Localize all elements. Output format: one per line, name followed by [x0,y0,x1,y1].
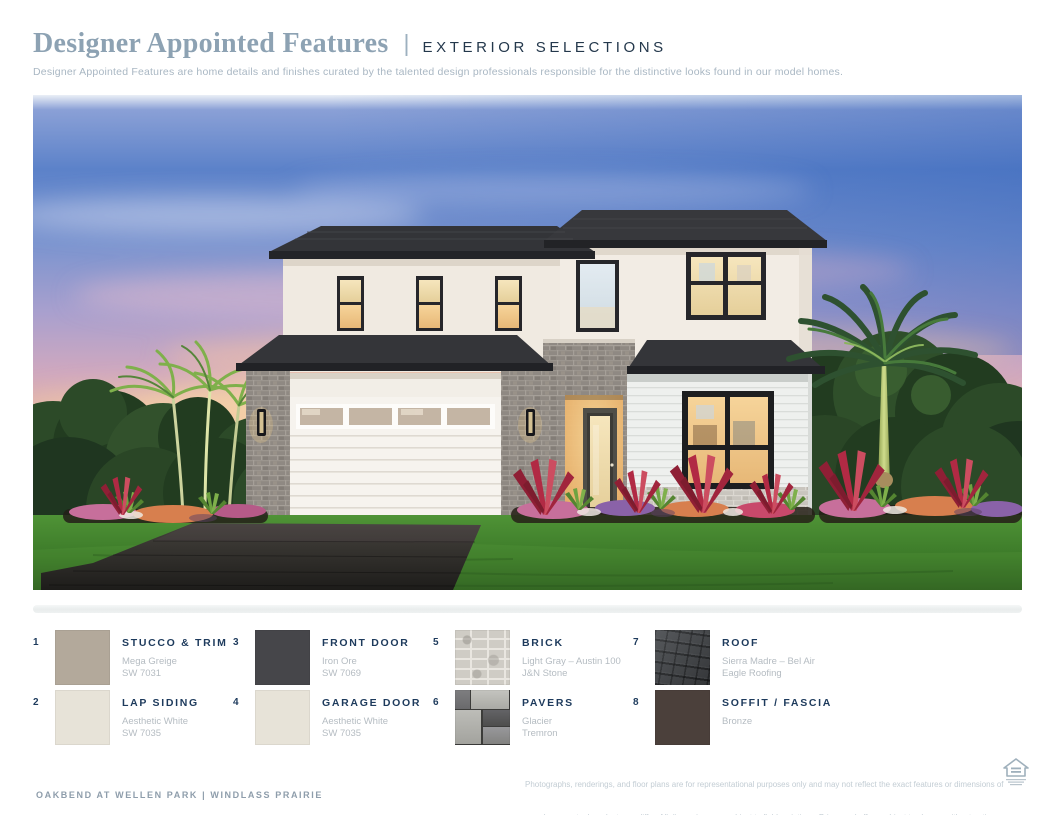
selection-number: 4 [233,690,255,708]
selection-color-name: Light Gray – Austin 100 [522,656,621,668]
selection-label: GARAGE DOOR [322,697,421,709]
community-line1: OAKBEND AT WELLEN PARK | WINDLASS PRAIRI… [36,788,348,802]
selection-color-name: Aesthetic White [322,716,421,728]
selection-color-code: SW 7031 [122,668,228,680]
swatch-lap-siding [55,690,110,745]
selection-number: 1 [33,630,55,648]
selection-color-code: Eagle Roofing [722,668,815,680]
selection-color-name: Aesthetic White [122,716,199,728]
selection-garage-door: 4 GARAGE DOOR Aesthetic White SW 7035 [233,690,433,745]
selection-label: LAP SIDING [122,697,199,709]
selection-front-door: 3 FRONT DOOR Iron Ore SW 7069 [233,630,433,685]
selection-stucco-trim: 1 STUCCO & TRIM Mega Greige SW 7031 [33,630,233,685]
selection-soffit-fascia: 8 SOFFIT / FASCIA Bronze [633,690,833,745]
selection-color-code: Tremron [522,728,574,740]
selection-lap-siding: 2 LAP SIDING Aesthetic White SW 7035 [33,690,233,745]
selection-number: 8 [633,690,655,708]
swatch-soffit-fascia [655,690,710,745]
selection-color-code: SW 7069 [322,668,410,680]
selection-label: PAVERS [522,697,574,709]
selections-grid: 1 STUCCO & TRIM Mega Greige SW 7031 3 FR… [33,630,833,745]
selection-label: SOFFIT / FASCIA [722,697,832,709]
selection-label: ROOF [722,637,815,649]
selection-number: 2 [33,690,55,708]
swatch-front-door [255,630,310,685]
selection-label: STUCCO & TRIM [122,637,228,649]
selection-label: BRICK [522,637,621,649]
selection-color-code: SW 7035 [322,728,421,740]
swatch-brick [455,630,510,685]
title-divider: | [404,30,410,57]
selection-brick: 5 BRICK Light Gray – Austin 100 J&N Ston… [433,630,633,685]
selection-pavers: 6 PAVERS Glacier Tremron [433,690,633,745]
selection-number: 6 [433,690,455,708]
community-address: OAKBEND AT WELLEN PARK | WINDLASS PRAIRI… [36,760,348,815]
page-header: Designer Appointed Features | EXTERIOR S… [33,28,667,60]
selection-color-code: J&N Stone [522,668,621,680]
selection-color-name: Bronze [722,716,832,728]
section-divider [33,605,1022,613]
selection-color-name: Glacier [522,716,574,728]
swatch-garage-door [255,690,310,745]
swatch-pavers [455,690,510,745]
selection-number: 7 [633,630,655,648]
selection-color-name: Mega Greige [122,656,228,668]
selection-color-code: SW 7035 [122,728,199,740]
page-title: Designer Appointed Features [33,28,389,60]
selection-color-name: Sierra Madre – Bel Air [722,656,815,668]
selection-roof: 7 ROOF Sierra Madre – Bel Air Eagle Roof… [633,630,833,685]
selection-number: 3 [233,630,255,648]
exterior-rendering [33,95,1022,590]
house-rendering-art [33,95,1022,590]
tagline: Designer Appointed Features are home det… [33,66,843,78]
selection-number: 5 [433,630,455,648]
selection-color-name: Iron Ore [322,656,410,668]
selection-label: FRONT DOOR [322,637,410,649]
swatch-roof [655,630,710,685]
legal-disclaimer: Photographs, renderings, and floor plans… [525,757,997,815]
designer-features-sheet: Designer Appointed Features | EXTERIOR S… [0,0,1055,815]
equal-housing-opportunity-icon [1002,757,1030,787]
house [236,210,827,534]
swatch-stucco-trim [55,630,110,685]
disclaimer-line: Photographs, renderings, and floor plans… [525,779,997,790]
page-subtitle: EXTERIOR SELECTIONS [423,39,667,56]
